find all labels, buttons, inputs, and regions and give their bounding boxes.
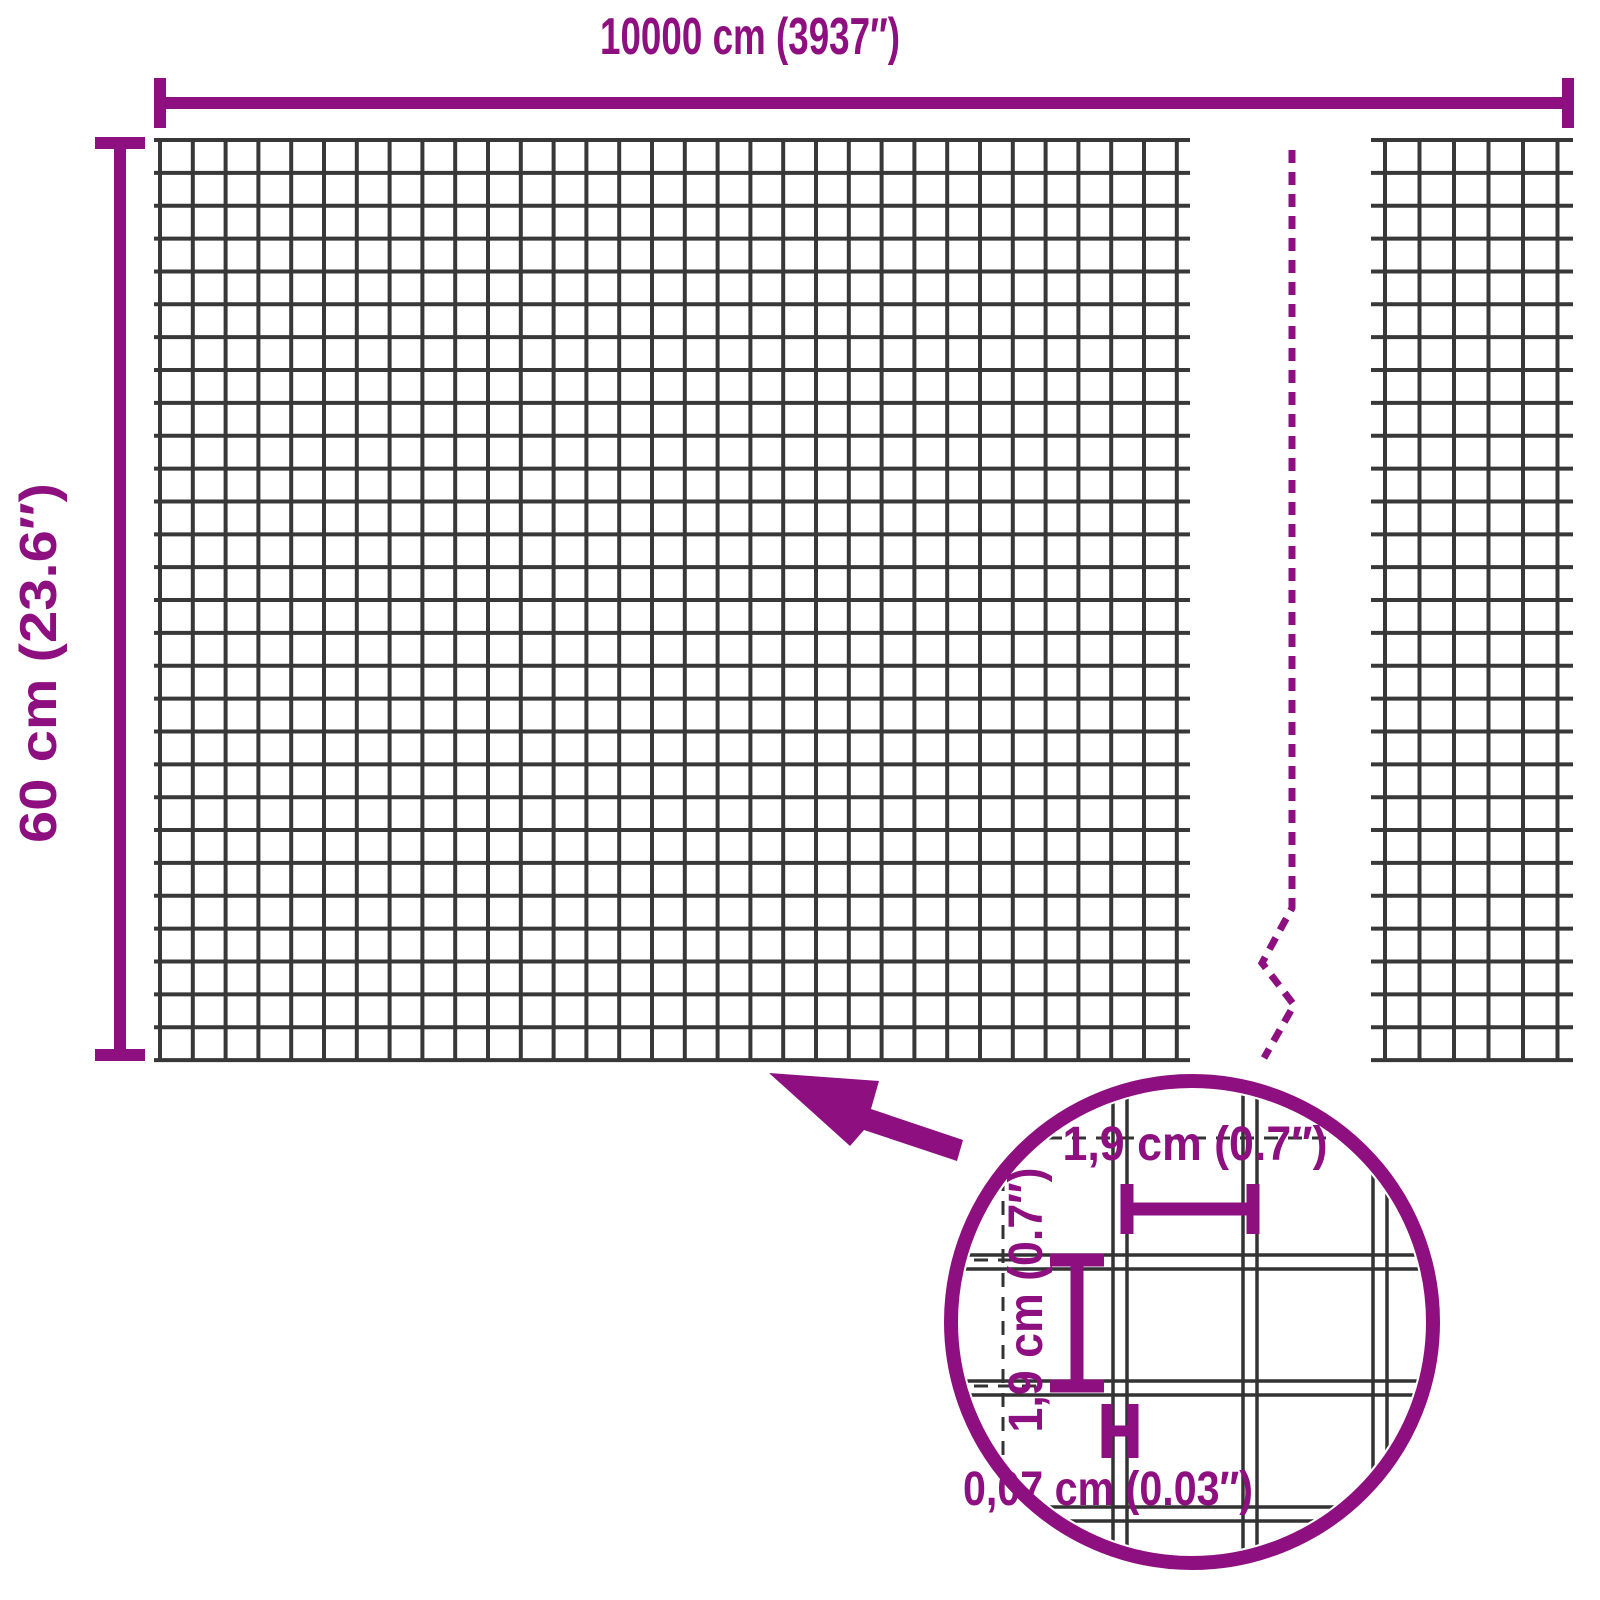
mesh-opening-width-label: 1,9 cm (0.7″) — [1063, 1118, 1328, 1171]
magnifier: 1,9 cm (0.7″) 1,9 cm (0.7″) 0,07 cm (0.0… — [950, 1078, 1434, 1566]
zoom-arrow-icon — [769, 1073, 963, 1161]
mesh-dimension-diagram: 10000 cm (3937″) 60 cm (23.6″) — [0, 0, 1600, 1600]
mesh-opening-height-label: 1,9 cm (0.7″) — [1000, 1168, 1053, 1433]
height-dimension: 60 cm (23.6″) — [10, 143, 145, 1055]
mesh-grid-large — [154, 140, 1190, 1060]
mesh-grid-small — [1371, 140, 1573, 1060]
width-dimension: 10000 cm (3937″) — [160, 8, 1568, 128]
break-line — [1262, 150, 1294, 1058]
diagram-canvas: 10000 cm (3937″) 60 cm (23.6″) — [0, 0, 1600, 1600]
width-dimension-label: 10000 cm (3937″) — [600, 8, 900, 66]
height-dimension-label: 60 cm (23.6″) — [10, 483, 68, 843]
